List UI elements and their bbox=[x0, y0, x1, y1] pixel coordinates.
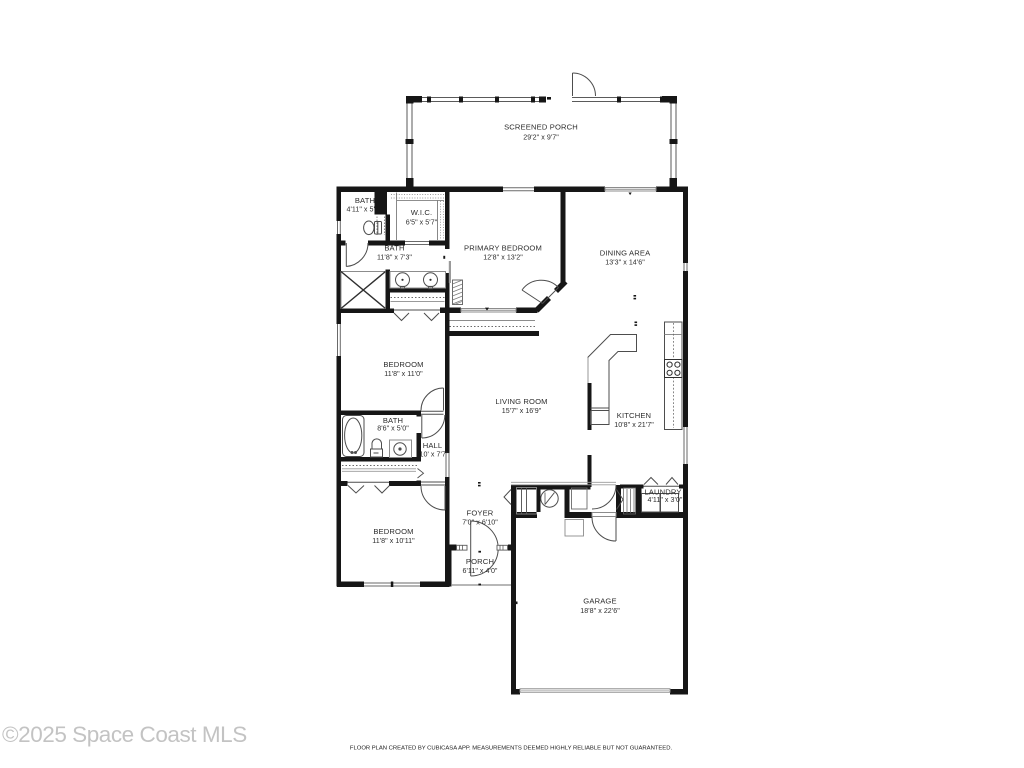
svg-text:29'2" x 9'7": 29'2" x 9'7" bbox=[523, 134, 559, 142]
svg-text:8'6" x 5'0": 8'6" x 5'0" bbox=[377, 425, 409, 433]
svg-text:GARAGE: GARAGE bbox=[583, 597, 616, 606]
svg-text:18'8" x 22'6": 18'8" x 22'6" bbox=[580, 607, 620, 615]
svg-text:BATH: BATH bbox=[384, 244, 404, 253]
svg-text:7'0" x 6'10": 7'0" x 6'10" bbox=[462, 519, 498, 527]
svg-text:10'8" x 21'7": 10'8" x 21'7" bbox=[614, 421, 654, 429]
svg-text:6'5" x 5'7": 6'5" x 5'7" bbox=[406, 219, 438, 227]
svg-text:12'8" x 13'2": 12'8" x 13'2" bbox=[483, 254, 523, 262]
svg-text:11'8" x 7'3": 11'8" x 7'3" bbox=[377, 254, 412, 262]
svg-text:FLOOR PLAN CREATED BY CUBICASA: FLOOR PLAN CREATED BY CUBICASA APP. MEAS… bbox=[350, 746, 673, 752]
svg-text:DINING AREA: DINING AREA bbox=[600, 249, 651, 258]
svg-text:BEDROOM: BEDROOM bbox=[373, 527, 413, 536]
svg-text:11'8" x 10'11": 11'8" x 10'11" bbox=[372, 537, 415, 545]
svg-text:FOYER: FOYER bbox=[467, 509, 494, 518]
svg-text:4'11" x 3'0": 4'11" x 3'0" bbox=[647, 496, 682, 504]
svg-text:13'3" x 14'6": 13'3" x 14'6" bbox=[605, 259, 645, 267]
svg-text:KITCHEN: KITCHEN bbox=[617, 411, 651, 420]
svg-text:11'8" x 11'0": 11'8" x 11'0" bbox=[384, 370, 423, 378]
svg-text:HALL: HALL bbox=[423, 441, 443, 450]
svg-text:6'11" x 4'0": 6'11" x 4'0" bbox=[462, 567, 497, 575]
svg-text:15'7" x 16'9": 15'7" x 16'9" bbox=[502, 407, 542, 415]
svg-text:BATH: BATH bbox=[355, 196, 375, 205]
svg-text:PRIMARY BEDROOM: PRIMARY BEDROOM bbox=[464, 244, 542, 253]
svg-text:LIVING ROOM: LIVING ROOM bbox=[495, 397, 547, 406]
svg-text:BEDROOM: BEDROOM bbox=[383, 360, 423, 369]
svg-text:PORCH: PORCH bbox=[466, 557, 494, 566]
svg-text:SCREENED PORCH: SCREENED PORCH bbox=[504, 123, 578, 132]
svg-text:©2025 Space Coast MLS: ©2025 Space Coast MLS bbox=[2, 722, 247, 747]
svg-text:W.I.C.: W.I.C. bbox=[411, 208, 433, 217]
svg-text:10' x 7'7": 10' x 7'7" bbox=[420, 451, 449, 459]
